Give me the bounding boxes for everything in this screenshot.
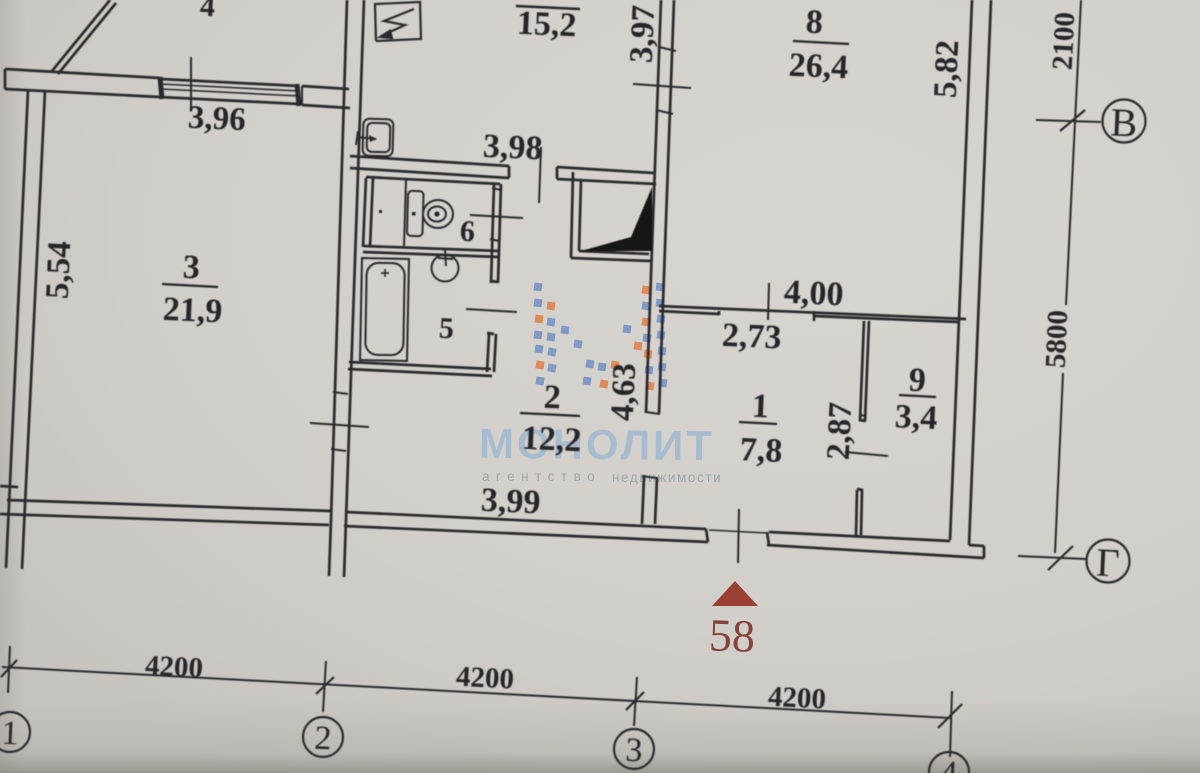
svg-text:4: 4 — [940, 755, 959, 773]
svg-text:3: 3 — [625, 732, 644, 770]
svg-text:2: 2 — [543, 379, 562, 417]
svg-text:5,82: 5,82 — [928, 39, 967, 98]
svg-text:8: 8 — [805, 4, 824, 42]
svg-text:1: 1 — [751, 388, 770, 426]
svg-text:3: 3 — [182, 249, 201, 287]
svg-text:6: 6 — [459, 215, 475, 249]
svg-text:5800: 5800 — [1040, 309, 1075, 368]
svg-text:26,4: 26,4 — [788, 47, 849, 87]
svg-text:2: 2 — [314, 720, 333, 758]
svg-text:4: 4 — [199, 0, 215, 23]
svg-text:3,97: 3,97 — [624, 4, 663, 63]
svg-text:3,4: 3,4 — [894, 398, 938, 437]
svg-text:В: В — [1110, 99, 1139, 145]
svg-text:недвижимости: недвижимости — [612, 470, 722, 485]
svg-text:3,99: 3,99 — [480, 482, 541, 522]
svg-text:7,8: 7,8 — [739, 431, 783, 470]
svg-text:4,63: 4,63 — [605, 362, 644, 421]
svg-text:4,00: 4,00 — [783, 274, 844, 314]
svg-text:Г: Г — [1095, 539, 1120, 585]
svg-text:3,96: 3,96 — [187, 100, 246, 139]
svg-text:9: 9 — [908, 362, 927, 400]
svg-text:58: 58 — [708, 609, 756, 662]
svg-text:1: 1 — [1, 715, 20, 753]
svg-text:4200: 4200 — [455, 661, 515, 696]
svg-text:4200: 4200 — [767, 681, 827, 716]
svg-text:3,98: 3,98 — [482, 128, 543, 168]
svg-text:15,2: 15,2 — [516, 5, 577, 45]
svg-text:4200: 4200 — [144, 650, 204, 685]
svg-text:5: 5 — [438, 312, 454, 346]
svg-text:2100: 2100 — [1047, 11, 1082, 70]
svg-text:2,87: 2,87 — [821, 401, 860, 460]
svg-text:21,9: 21,9 — [162, 291, 223, 331]
svg-text:МОНОЛИТ: МОНОЛИТ — [479, 420, 715, 469]
svg-text:2,73: 2,73 — [721, 317, 782, 357]
svg-text:12,2: 12,2 — [521, 420, 582, 460]
svg-text:5,54: 5,54 — [40, 240, 79, 299]
